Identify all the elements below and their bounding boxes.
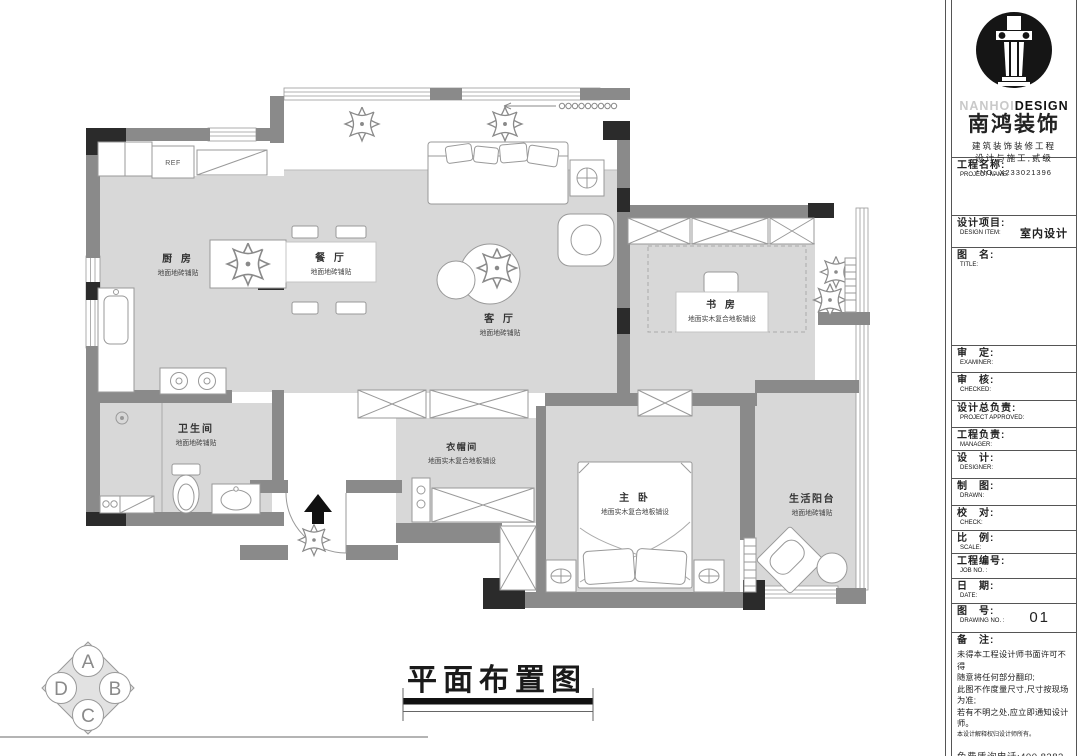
note-line: 若有不明之处,应立即通知设计 [957,707,1072,719]
elevation-letter-b: B [109,679,122,700]
caption-text: 平面布置图 [407,664,587,697]
room-label-living: 客 厅 [483,312,516,325]
plant-icon [292,518,336,562]
entry-arrow-icon [304,494,332,524]
brand-en-bold: DESIGN [1015,99,1069,113]
tb-row-job-no: 工程编号: JOB NO. : [952,554,1076,579]
tb-label-cn: 审 核: [957,375,1072,387]
room-label-bathroom: 卫生间 [178,422,214,435]
elevation-symbol: A B C D [0,642,428,737]
tb-row-manager: 工程负责: MANAGER: [952,428,1076,451]
floor-plan: 厨 房 地面地砖铺贴 餐 厅 地面地砖铺贴 客 厅 地面地砖铺贴 书 房 地面实… [0,0,945,756]
note-line: 师。 [957,718,1072,730]
tb-row-designer: 设 计: DESIGNER: [952,451,1076,479]
bed [578,462,692,588]
ac-unit [845,258,856,312]
note-small-print: 本设计解释权归设计师所有。 [957,731,1072,740]
company-logo-block: NANHOIDESIGN 南鸿装饰 建筑装饰装修工程 设计与施工,贰级 *NO:… [952,0,1076,158]
tb-label-cn: 比 例: [957,533,1072,545]
study-wardrobe [628,218,814,244]
room-label-study: 书 房 [706,298,738,311]
plant-icon [338,100,386,148]
tb-label-en: CHECKED: [957,387,1072,394]
elevation-letter-c: C [81,706,95,727]
side-table-lamp [570,160,604,196]
elevation-letter-a: A [82,652,95,673]
note-line: 为准; [957,695,1072,707]
room-label-dining: 餐 厅 [314,251,347,264]
tb-label-en: CHECK: [957,520,1072,527]
tb-row-design-item: 设计项目: DESIGN ITEM: 室内设计 [952,216,1076,248]
column-logo-icon [952,0,1076,96]
room-label-balcony: 生活阳台 [789,492,835,505]
tb-label-en: SCALE: [957,545,1072,552]
curtain-symbol [504,103,617,109]
stove [160,368,226,394]
tb-label-cn: 图 名: [957,250,1072,262]
note-line: 未得本工程设计师书面许可不得 [957,649,1072,672]
tb-label-en: PROJECT NAME: [957,172,1072,179]
brand-en-light: NANHOI [959,99,1014,113]
tb-label-en: DESIGNER: [957,465,1072,472]
plant-icon [481,100,529,148]
tb-label-cn: 设计总负责: [957,403,1072,415]
tb-label-cn: 日 期: [957,581,1072,593]
tb-label-cn: 工程负责: [957,430,1072,442]
tb-row-notes: 备 注: 未得本工程设计师书面许可不得 随意将任何部分翻印; 此图不作度量尺寸,… [952,633,1076,756]
room-finish-master: 地面实木复合地板铺设 [601,507,669,516]
tb-label-cn: 工程名称: [957,160,1072,172]
tb-row-drawing-no: 图 号: DRAWING NO. : 01 [952,604,1076,633]
room-finish-living: 地面地砖铺贴 [480,328,521,337]
room-finish-bathroom: 地面地砖铺贴 [176,438,217,447]
room-label-cloakroom: 衣帽间 [446,441,478,452]
tb-value-design-item: 室内设计 [1020,225,1068,241]
tb-row-scale: 比 例: SCALE: [952,531,1076,554]
brand-chinese: 南鸿装饰 [952,113,1076,136]
tb-label-cn: 图 号: [957,606,1072,618]
tb-row-examiner: 审 定: EXAMINER: [952,346,1076,373]
sliding-door-track [744,538,756,592]
title-block: NANHOIDESIGN 南鸿装饰 建筑装饰装修工程 设计与施工,贰级 *NO:… [945,0,1080,756]
study-chair [704,272,738,294]
fridge-label: REF [165,160,181,167]
tb-row-title: 图 名: TITLE: [952,248,1076,346]
tb-value-drawing-no: 01 [1029,609,1050,626]
room-finish-dining: 地面地砖铺贴 [311,267,352,276]
tb-row-check: 校 对: CHECK: [952,506,1076,531]
tb-label-en: DRAWN: [957,493,1072,500]
drawing-caption: 平面布置图 [403,664,593,721]
tb-row-project-name: 工程名称: PROJECT NAME: [952,158,1076,216]
tb-label-en: EXAMINER: [957,360,1072,367]
tb-label-en: TITLE: [957,262,1072,269]
tb-label-en: MANAGER: [957,442,1072,449]
room-finish-balcony: 地面地砖铺贴 [792,508,833,517]
note-line: 此图不作度量尺寸,尺寸按现场 [957,684,1072,696]
note-line: 随意将任何部分翻印; [957,672,1072,684]
tb-label-cn: 校 对: [957,508,1072,520]
tb-row-project-approved: 设计总负责: PROJECT APPROVED: [952,401,1076,428]
room-finish-study: 地面实木复合地板铺设 [688,314,756,323]
brand-subline-1: 建筑装饰装修工程 [952,140,1076,152]
tb-label-en: DRAWING NO. : [957,618,1072,625]
drawing-sheet: 厨 房 地面地砖铺贴 餐 厅 地面地砖铺贴 客 厅 地面地砖铺贴 书 房 地面实… [0,0,1080,756]
elevation-letter-d: D [54,679,68,700]
sofa [428,142,568,204]
tb-label-en: PROJECT APPROVED: [957,415,1072,422]
service-phone: 免费质询电话:400 8383 168 [957,749,1072,756]
tb-label-cn: 制 图: [957,481,1072,493]
tb-label-cn: 设 计: [957,453,1072,465]
tb-label-cn: 审 定: [957,348,1072,360]
caption-bar [403,698,593,705]
tb-notes-label: 备 注: [957,635,1072,647]
tb-row-checked: 审 核: CHECKED: [952,373,1076,401]
master-door-cabinet [638,390,692,416]
brand-english: NANHOIDESIGN [952,99,1076,113]
tb-label-en: DATE: [957,593,1072,600]
tb-row-drawn: 制 图: DRAWN: [952,479,1076,506]
room-finish-cloakroom: 地面实木复合地板铺设 [428,456,496,465]
room-label-master: 主 卧 [619,491,651,504]
room-label-kitchen: 厨 房 [162,252,194,265]
tb-label-en: JOB NO. : [957,568,1072,575]
armchair [558,214,614,266]
tb-row-date: 日 期: DATE: [952,579,1076,604]
room-finish-kitchen: 地面地砖铺贴 [158,268,199,277]
tb-label-cn: 工程编号: [957,556,1072,568]
